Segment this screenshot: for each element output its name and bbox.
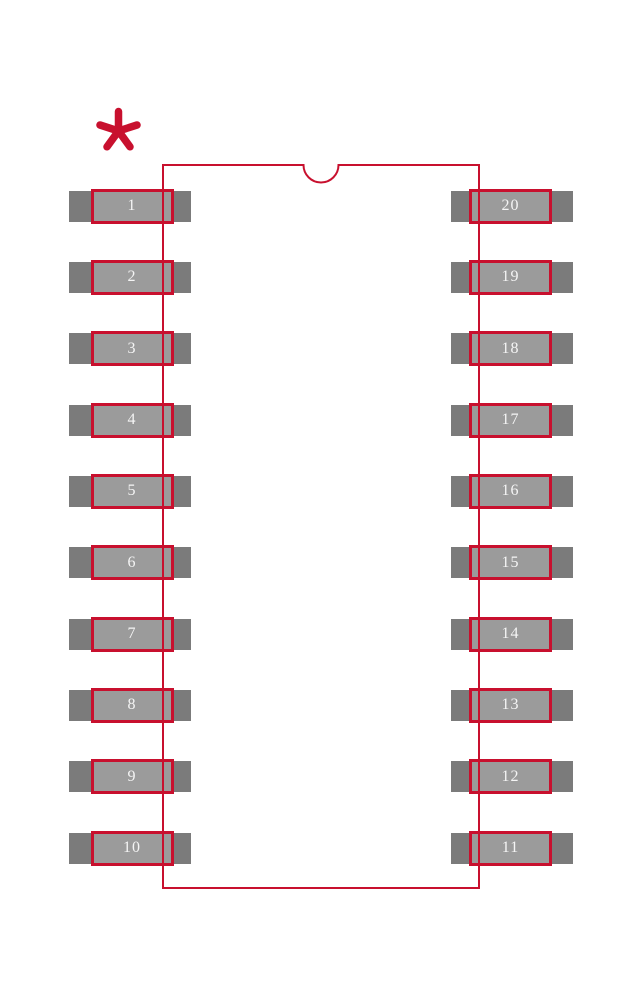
pad-right-19: 19 <box>451 262 573 293</box>
pad-outline: 5 <box>91 474 174 509</box>
pad-right-15: 15 <box>451 547 573 578</box>
pin-number: 4 <box>128 412 137 428</box>
pad-left-9: 9 <box>69 761 191 792</box>
pad-outline: 2 <box>91 260 174 295</box>
pad-outline: 4 <box>91 403 174 438</box>
pin-number: 5 <box>128 483 137 499</box>
pin-number: 13 <box>502 697 520 713</box>
pin-number: 2 <box>128 269 137 285</box>
pin-number: 20 <box>502 198 520 214</box>
pad-left-1: 1 <box>69 191 191 222</box>
pin-number: 11 <box>502 840 519 856</box>
pad-outline: 15 <box>469 545 552 580</box>
pad-left-7: 7 <box>69 619 191 650</box>
pad-outline: 17 <box>469 403 552 438</box>
pin-number: 17 <box>502 412 520 428</box>
pad-outline: 18 <box>469 331 552 366</box>
footprint-canvas: 1 2 3 4 5 6 7 8 9 10 20 19 18 17 16 15 1… <box>0 0 642 1000</box>
pin-number: 10 <box>123 840 141 856</box>
pad-outline: 9 <box>91 759 174 794</box>
pad-right-16: 16 <box>451 476 573 507</box>
pad-left-4: 4 <box>69 405 191 436</box>
pad-outline: 16 <box>469 474 552 509</box>
pad-right-12: 12 <box>451 761 573 792</box>
pad-left-8: 8 <box>69 690 191 721</box>
pad-outline: 3 <box>91 331 174 366</box>
pad-right-17: 17 <box>451 405 573 436</box>
pin-number: 14 <box>502 626 520 642</box>
pad-outline: 14 <box>469 617 552 652</box>
pad-outline: 7 <box>91 617 174 652</box>
pad-outline: 19 <box>469 260 552 295</box>
pad-right-20: 20 <box>451 191 573 222</box>
pad-left-5: 5 <box>69 476 191 507</box>
pad-outline: 20 <box>469 189 552 224</box>
pad-left-2: 2 <box>69 262 191 293</box>
pad-left-3: 3 <box>69 333 191 364</box>
pad-outline: 1 <box>91 189 174 224</box>
pad-outline: 13 <box>469 688 552 723</box>
pin1-marker-icon <box>100 112 137 147</box>
pin-number: 16 <box>502 483 520 499</box>
pin-number: 9 <box>128 769 137 785</box>
package-body-outline <box>163 165 479 888</box>
pad-right-11: 11 <box>451 833 573 864</box>
pin-number: 19 <box>502 269 520 285</box>
pin-number: 8 <box>128 697 137 713</box>
pad-left-6: 6 <box>69 547 191 578</box>
pin-number: 12 <box>502 769 520 785</box>
pin-number: 15 <box>502 555 520 571</box>
pad-right-14: 14 <box>451 619 573 650</box>
pad-outline: 11 <box>469 831 552 866</box>
pad-outline: 8 <box>91 688 174 723</box>
pad-outline: 10 <box>91 831 174 866</box>
pad-right-13: 13 <box>451 690 573 721</box>
pad-left-10: 10 <box>69 833 191 864</box>
pin-number: 6 <box>128 555 137 571</box>
pad-outline: 12 <box>469 759 552 794</box>
pin-number: 7 <box>128 626 137 642</box>
pin-number: 3 <box>128 341 137 357</box>
pad-outline: 6 <box>91 545 174 580</box>
pin-number: 18 <box>502 341 520 357</box>
pin-number: 1 <box>128 198 137 214</box>
pad-right-18: 18 <box>451 333 573 364</box>
